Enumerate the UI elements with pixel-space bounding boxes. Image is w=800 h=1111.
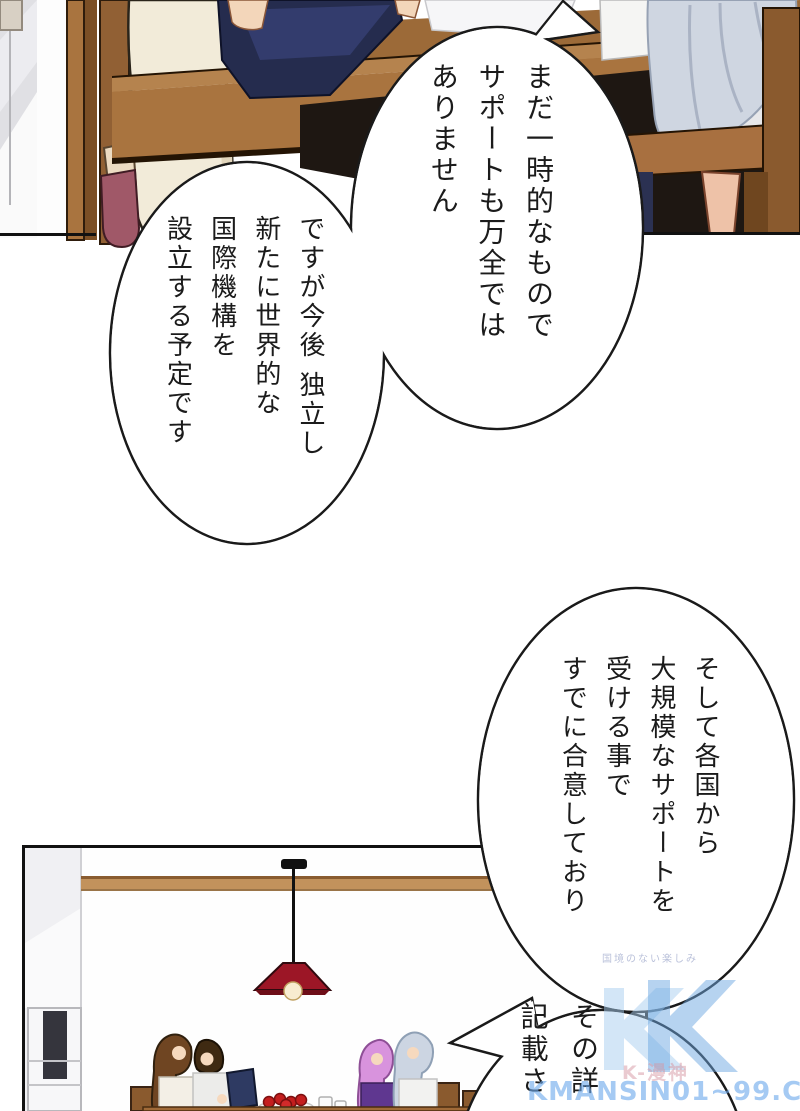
speech-bubble-4-text: その詳 記載さ bbox=[500, 1002, 608, 1111]
silver-hair-character bbox=[394, 1033, 438, 1111]
right-character-body bbox=[600, 0, 652, 60]
maroon-cushion bbox=[101, 170, 139, 247]
panel-edge-left bbox=[0, 233, 96, 236]
manga-page: まだ一時的なもので サポートも万全では ありません ですが今後 独立し 新たに世… bbox=[0, 0, 800, 1111]
speech-bubble-2-text: ですが今後 独立し 新たに世界的な 国際機構を 設立する予定です bbox=[150, 215, 332, 545]
navy-skirt bbox=[627, 172, 653, 234]
blue-book bbox=[227, 1069, 257, 1109]
speech-bubble-1-text: まだ一時的なもので サポートも万全では ありません bbox=[390, 62, 562, 422]
lamp-bulb bbox=[284, 982, 302, 1000]
speech-bubble-3-text: そして各国から 大規模なサポートを 受ける事で すでに合意しており bbox=[533, 655, 727, 1005]
wall-left bbox=[0, 0, 67, 238]
woman-brown-hair bbox=[152, 1035, 195, 1111]
pink-hair-character bbox=[358, 1040, 397, 1111]
cabinet-tv bbox=[28, 1008, 81, 1111]
panel-edge-right bbox=[630, 232, 800, 235]
man-with-tablet bbox=[193, 1040, 257, 1111]
table-front bbox=[143, 1107, 473, 1111]
